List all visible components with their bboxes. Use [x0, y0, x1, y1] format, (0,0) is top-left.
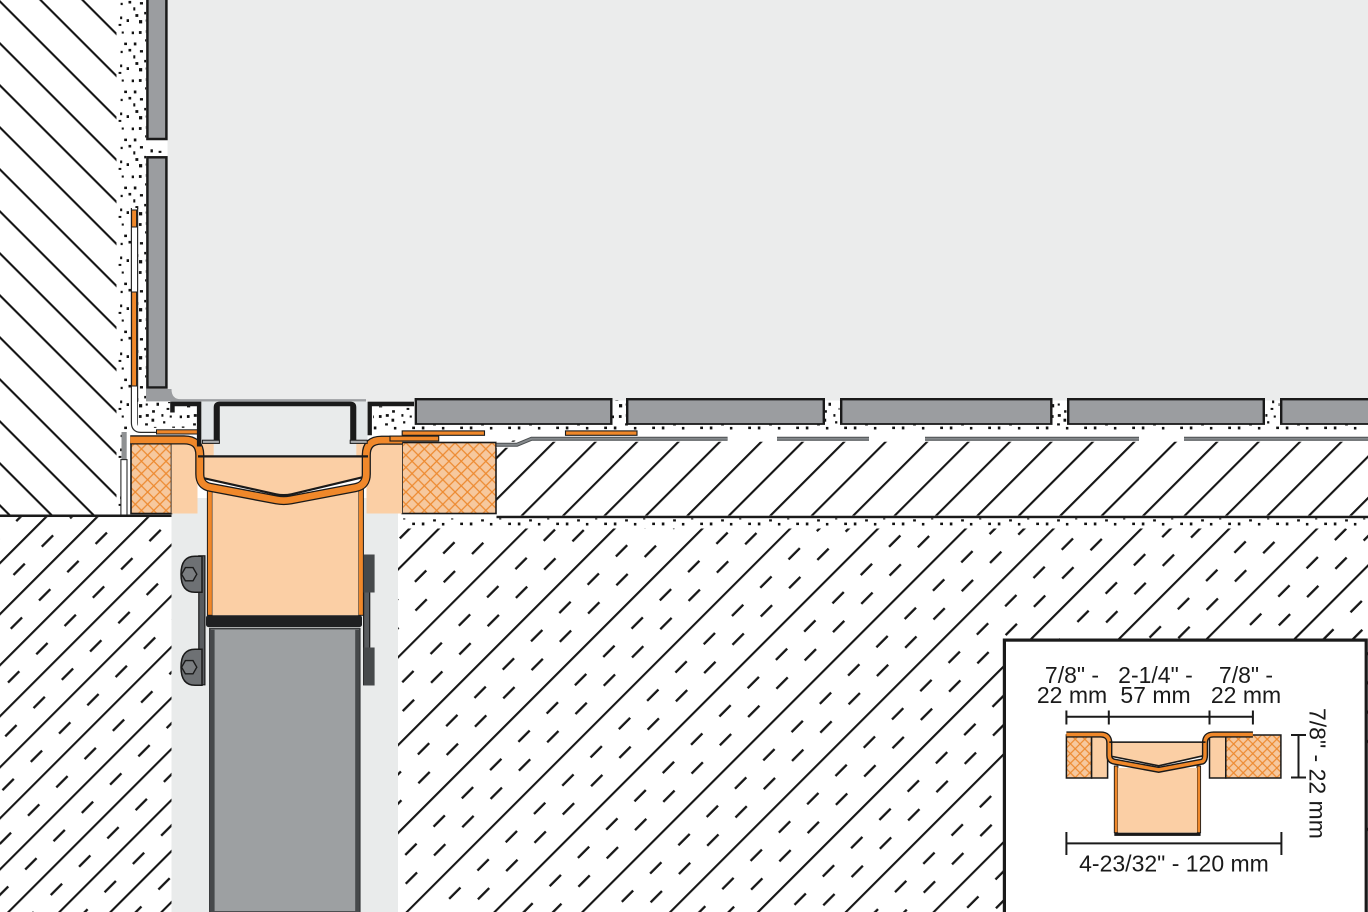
svg-text:22 mm: 22 mm: [1211, 682, 1281, 708]
svg-text:7/8" - 22 mm: 7/8" - 22 mm: [1305, 708, 1331, 839]
svg-text:4-23/32" - 120 mm: 4-23/32" - 120 mm: [1079, 851, 1269, 877]
svg-text:57 mm: 57 mm: [1120, 682, 1190, 708]
svg-text:22 mm: 22 mm: [1037, 682, 1107, 708]
